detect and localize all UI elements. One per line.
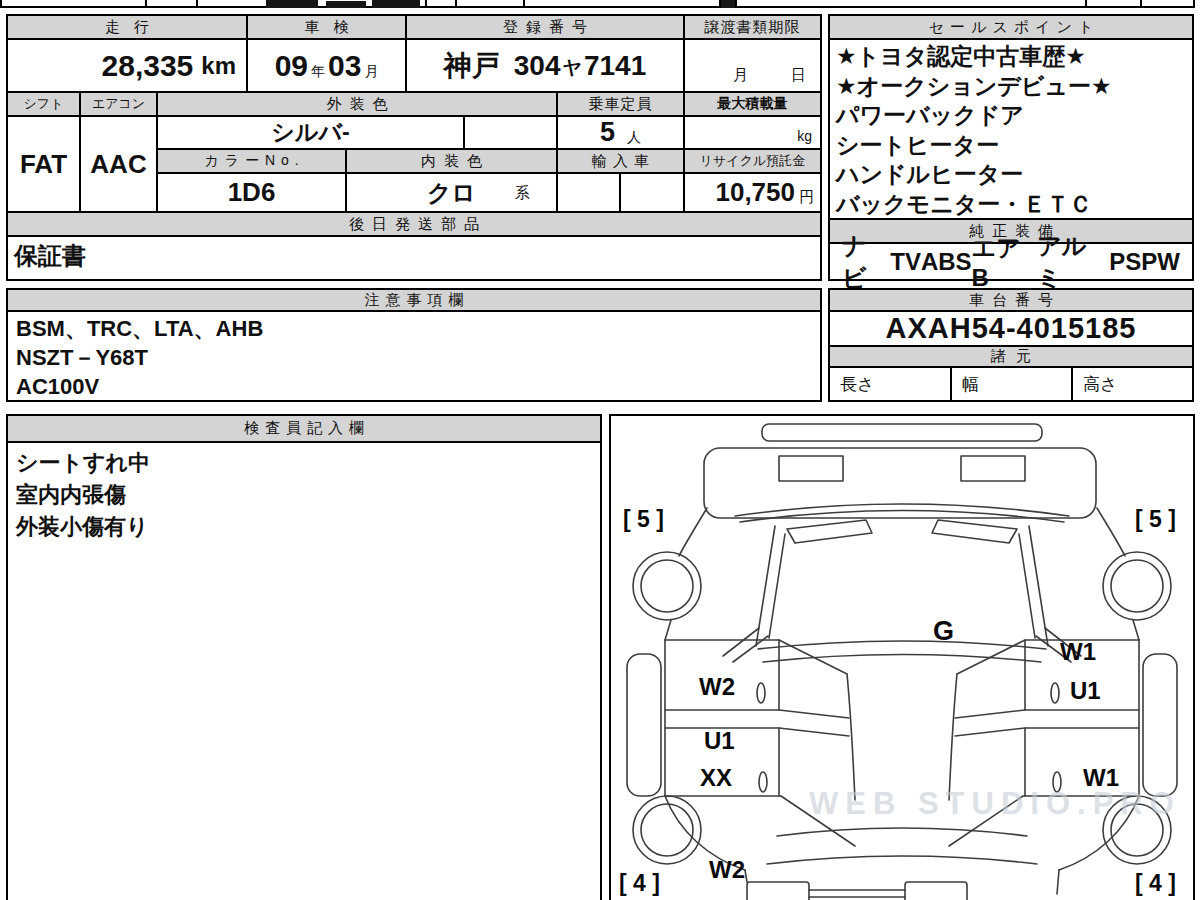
transfer-deadline-value-cell: 月 日 [683,38,822,93]
exterior-color-empty-cell [463,115,558,150]
max-load-value-cell: kg [683,115,822,150]
color-no-header-label: カラーNo. [198,152,304,170]
inspection-header-label: 車検 [291,18,363,37]
cutoff-text-fragment [721,0,735,8]
cutoff-cell [425,0,457,8]
import-header: 輸入車 [556,148,685,174]
inspector-line: シートすれ中 [16,447,592,479]
capacity-header-label: 乗車定員 [589,95,653,114]
tire-depth-front-left: [ 5 ] [623,506,664,533]
max-load-header-label: 最大積載量 [718,95,788,113]
max-load-unit: kg [797,128,812,144]
sales-points-list: ★トヨタ認定中古車歴★ ★オークションデビュー★ パワーバックドア シートヒータ… [828,38,1194,220]
capacity-value-cell: 5人 [556,115,685,150]
registration-number: 7141 [584,50,646,82]
cutoff-cell [1140,0,1195,8]
tire-depth-rear-left: [ 4 ] [619,870,660,897]
note-line: BSM、TRC、LTA、AHB [16,314,812,343]
notes-header: 注意事項欄 [6,288,822,312]
registration-value-cell: 神戸304ヤ7141 [405,38,685,93]
equipment-value-cell: ナビ TV ABS エアB アルミ PS PW [828,242,1194,281]
cutoff-cell [1085,0,1142,8]
registration-header: 登録番号 [405,14,685,40]
sales-point-item: ★トヨタ認定中古車歴★ [836,42,1186,72]
sales-points-header-label: セールスポイント [923,18,1099,37]
later-shipping-value-cell: 保証書 [6,235,822,281]
max-load-header: 最大積載量 [683,91,822,117]
inspection-year-suffix: 年 [311,63,325,81]
cutoff-text-fragment [326,1,366,8]
cutoff-cell [523,0,721,8]
inspection-header: 車検 [246,14,407,40]
color-no-value-cell: 1D6 [156,172,347,213]
dimension-height-cell: 高さ [1071,366,1194,402]
import-value-cell-right [619,172,685,213]
registration-region: 神戸 [444,47,500,85]
transfer-month-suffix: 月 [733,66,748,85]
aircon-value-cell: AAC [79,115,158,213]
later-shipping-value: 保証書 [14,240,86,272]
mileage-header-label: 走行 [91,18,163,37]
tire-depth-rear-right: [ 4 ] [1135,870,1176,897]
cutoff-cell [0,0,147,8]
capacity-unit: 人 [627,129,641,147]
note-line: AC100V [16,372,812,401]
color-no-header: カラーNo. [156,148,347,174]
registration-kana: ヤ [562,55,581,81]
watermark-text: WEB STUDIO.PRO [809,786,1181,822]
sales-point-item: ★オークションデビュー★ [836,72,1186,102]
shift-value-cell: FAT [6,115,81,213]
equipment-item: ナビ [842,230,890,294]
exterior-color-value-cell: シルバ- [156,115,465,150]
import-value-cell-left [556,172,621,213]
sales-point-item: パワーバックドア [836,101,1186,131]
capacity-header: 乗車定員 [556,91,685,117]
equipment-item: PW [1141,248,1180,276]
cutoff-cell [735,0,1087,8]
chassis-value: AXAH54-4015185 [886,312,1137,345]
inspection-year: 09 [275,49,308,83]
recycle-deposit-value-cell: 10,750円 [683,172,822,213]
inspection-month: 03 [328,49,361,83]
damage-mark: W2 [709,856,745,884]
recycle-deposit-unit: 円 [799,188,814,207]
registration-header-label: 登録番号 [495,18,595,37]
interior-color-value: クロ [427,177,476,209]
shift-header-label: シフト [24,95,64,113]
inspector-line: 外装小傷有り [16,511,592,543]
damage-mark: W1 [1060,638,1096,666]
interior-color-value-cell: クロ 系 [345,172,558,213]
inspector-body: シートすれ中 室内内張傷 外装小傷有り [8,443,600,547]
notes-body: BSM、TRC、LTA、AHB NSZT－Y68T AC100V [6,310,822,402]
mileage-value-cell: 28,335km [6,38,248,93]
damage-mark: W2 [699,673,735,701]
inspector-header: 検査員記入欄 [8,416,600,443]
note-line: NSZT－Y68T [16,343,812,372]
chassis-header: 車台番号 [828,288,1194,312]
transfer-deadline-header: 譲渡書類期限 [683,14,822,40]
notes-header-label: 注意事項欄 [359,291,470,310]
dimension-length-cell: 長さ [828,366,952,402]
import-header-label: 輸入車 [586,152,655,171]
mileage-unit: km [201,52,236,80]
inspector-line: 室内内張傷 [16,479,592,511]
aircon-value: AAC [90,149,146,180]
exterior-color-value: シルバ- [271,117,349,148]
dimension-length-label: 長さ [840,373,874,396]
recycle-deposit-header: リサイクル預託金 [683,148,822,174]
chassis-header-label: 車台番号 [961,291,1061,310]
dimension-width-label: 幅 [962,373,979,396]
sales-point-item: ハンドルヒーター [836,160,1186,190]
car-top-view-drawing [611,416,1193,900]
color-no-value: 1D6 [228,177,276,208]
damage-mark: U1 [1070,677,1101,705]
sales-point-item: シートヒーター [836,131,1186,161]
car-diagram-box: WEB STUDIO.PRO [ 5 ] [ 5 ] [ 4 ] [ 4 ] G… [609,414,1195,900]
chassis-value-cell: AXAH54-4015185 [828,310,1194,347]
dimension-width-cell: 幅 [950,366,1073,402]
transfer-deadline-header-label: 譲渡書類期限 [705,18,801,37]
cutoff-cell [145,0,198,8]
interior-color-header: 内装色 [345,148,558,174]
capacity-value: 5 [600,117,615,148]
cutoff-cell [455,0,525,8]
inspection-value-cell: 09年03月 [246,38,407,93]
exterior-color-header: 外装色 [156,91,558,117]
registration-class: 304 [514,50,561,82]
equipment-item: ABS [921,248,972,276]
recycle-deposit-header-label: リサイクル預託金 [700,152,806,170]
damage-mark: U1 [704,727,735,755]
shift-header: シフト [6,91,81,117]
sales-points-header: セールスポイント [828,14,1194,40]
later-shipping-header-label: 後日発送部品 [341,215,487,234]
dimensions-header: 諸元 [828,345,1194,368]
cutoff-text-fragment [266,0,318,8]
transfer-day-suffix: 日 [791,66,806,85]
dimension-height-label: 高さ [1083,373,1117,396]
mileage-header: 走行 [6,14,248,40]
later-shipping-header: 後日発送部品 [6,211,822,237]
tire-depth-front-right: [ 5 ] [1135,506,1176,533]
inspector-header-label: 検査員記入欄 [238,419,370,438]
exterior-color-header-label: 外装色 [319,95,396,114]
equipment-item: TV [890,248,921,276]
inspector-box: 検査員記入欄 シートすれ中 室内内張傷 外装小傷有り [6,414,602,900]
dimensions-header-label: 諸元 [981,347,1041,366]
inspection-month-suffix: 月 [364,63,378,81]
aircon-header-label: エアコン [92,95,145,113]
equipment-item: アルミ [1037,230,1109,294]
cutoff-text-fragment [372,0,420,8]
interior-color-header-label: 内装色 [413,152,490,171]
equipment-item: PS [1109,248,1141,276]
auction-sheet: 走行 車検 登録番号 譲渡書類期限 28,335km 09年03月 神戸304ヤ… [0,0,1200,900]
mileage-value: 28,335 [102,49,194,83]
sales-point-item: バックモニター・ＥＴＣ [836,190,1186,220]
recycle-deposit-value: 10,750 [715,177,795,208]
aircon-header: エアコン [79,91,158,117]
damage-mark: W1 [1083,764,1119,792]
damage-mark-glass: G [933,616,954,647]
shift-value: FAT [20,149,67,180]
equipment-item: エアB [972,232,1037,292]
damage-mark: XX [700,764,732,792]
interior-color-suffix: 系 [515,184,530,203]
